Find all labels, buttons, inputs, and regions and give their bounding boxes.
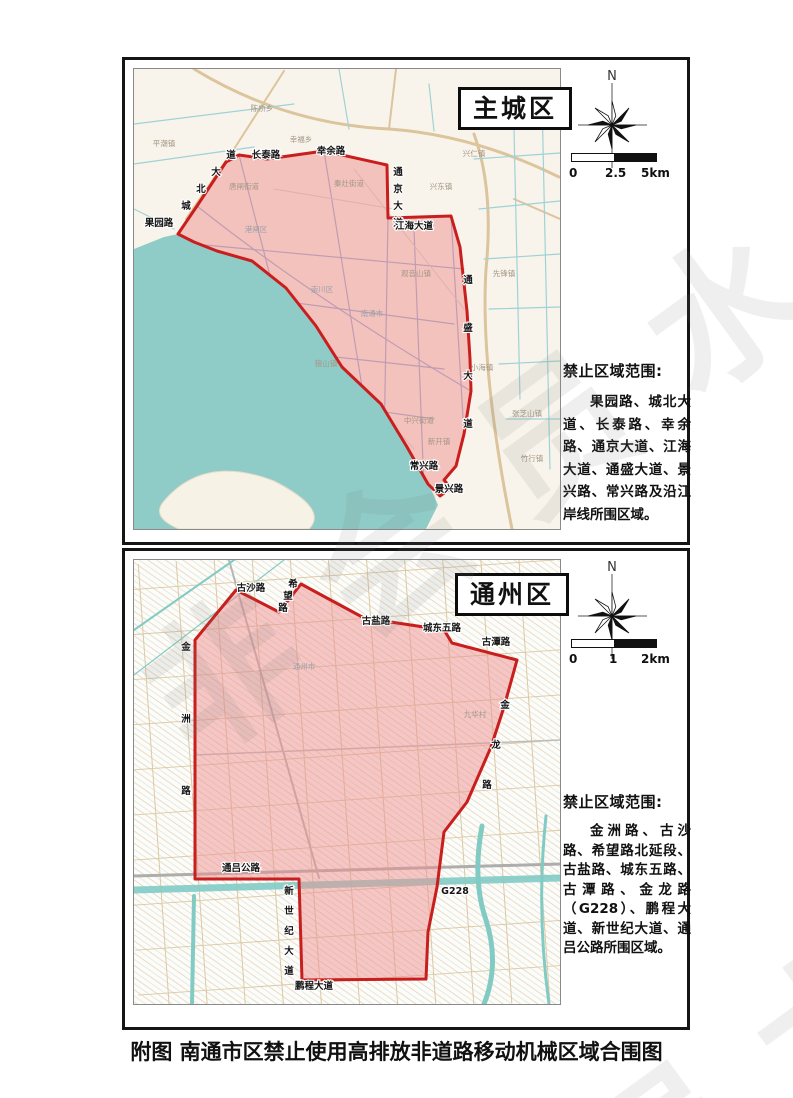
area-label: 幸福乡 xyxy=(290,135,313,144)
road-label: 城东五路 xyxy=(423,622,462,634)
area-label: 狼山镇 xyxy=(315,358,338,368)
area-label: 先锋镇 xyxy=(493,268,516,278)
map-title: 通州区 xyxy=(455,573,569,616)
area-label: 兴东镇 xyxy=(430,181,453,191)
scale-bar-white xyxy=(572,154,614,161)
area-label: 平潮镇 xyxy=(153,138,176,148)
area-label: 中兴街道 xyxy=(404,415,434,425)
area-label: 张芝山镇 xyxy=(512,408,542,418)
north-label: N xyxy=(607,560,617,575)
scale-label-end: 2km xyxy=(641,652,670,666)
scale-labels: 0 1 2km xyxy=(567,652,677,668)
panel-tongzhou: 通州市 九华村 古沙路 希望路 古盐路 城东五路 古潭路 金洲路 金龙路 G22… xyxy=(122,548,690,1030)
area-label: 兴仁镇 xyxy=(463,148,486,158)
road-label: G228 xyxy=(441,886,469,897)
document-page: 非会员水印 非会员水印 xyxy=(0,0,793,1098)
map-tongzhou: 通州市 九华村 古沙路 希望路 古盐路 城东五路 古潭路 金洲路 金龙路 G22… xyxy=(133,559,561,1005)
area-label: 九华村 xyxy=(464,709,487,719)
scale-labels: 0 2.5 5km xyxy=(567,166,677,182)
area-label: 崇川区 xyxy=(311,285,334,294)
road-label: 长泰路 xyxy=(252,149,281,161)
compass-blades xyxy=(588,592,636,640)
compass-rose: N xyxy=(577,559,663,667)
scale-bar-black xyxy=(614,154,656,161)
map-main-urban: 平潮镇 陈桥乡 幸福乡 兴仁镇 兴东镇 先锋镇 小海镇 张芝山镇 竹行镇 港闸区… xyxy=(133,68,561,530)
scale-bar xyxy=(571,153,657,162)
road-label: 常兴路 xyxy=(410,460,439,472)
restricted-area-legend: 禁止区域范围: 果园路、城北大道、长泰路、幸余路、通京大道、江海大道、通盛大道、… xyxy=(563,360,691,526)
road-label: 古盐路 xyxy=(362,615,391,627)
north-label: N xyxy=(607,69,617,84)
area-label: 秦灶街道 xyxy=(334,178,364,188)
scale-bar-white xyxy=(572,640,614,647)
road-label: 古沙路 xyxy=(237,582,266,594)
scale-label-start: 0 xyxy=(569,652,577,666)
scale-bar-black xyxy=(614,640,656,647)
scale-label-end: 5km xyxy=(641,166,670,180)
legend-heading: 禁止区域范围: xyxy=(563,360,691,381)
scale-bar xyxy=(571,639,657,648)
map-title: 主城区 xyxy=(458,87,572,130)
area-label: 小海镇 xyxy=(471,362,494,372)
road-label: 景兴路 xyxy=(434,483,464,495)
area-label: 竹行镇 xyxy=(521,453,544,463)
legend-body: 金洲路、古沙路、希望路北延段、古盐路、城东五路、古潭路、金龙路（G228）、鹏程… xyxy=(563,822,691,959)
road-label: 通吕公路 xyxy=(222,862,261,874)
scale-label-mid: 1 xyxy=(609,652,617,666)
area-label: 港闸区 xyxy=(245,224,268,234)
scale-label-start: 0 xyxy=(569,166,577,180)
road-label: 果园路 xyxy=(144,217,174,229)
scale-label-mid: 2.5 xyxy=(605,166,626,180)
road-label: 江海大道 xyxy=(395,220,434,232)
area-label: 唐闸街道 xyxy=(229,181,259,191)
area-label: 陈桥乡 xyxy=(251,103,274,113)
panel-main-urban: 平潮镇 陈桥乡 幸福乡 兴仁镇 兴东镇 先锋镇 小海镇 张芝山镇 竹行镇 港闸区… xyxy=(122,57,690,545)
page-caption: 附图 南通市区禁止使用高排放非道路移动机械区域合围图 xyxy=(0,1036,793,1066)
road-label: 古潭路 xyxy=(482,636,511,648)
road-label: 幸余路 xyxy=(317,145,346,157)
area-label: 南通市 xyxy=(361,308,384,318)
compass-blades xyxy=(588,101,636,149)
area-label: 通州市 xyxy=(293,661,316,671)
area-label: 观音山镇 xyxy=(401,268,431,278)
legend-body: 果园路、城北大道、长泰路、幸余路、通京大道、江海大道、通盛大道、景兴路、常兴路及… xyxy=(563,391,691,526)
road-label: 鹏程大道 xyxy=(295,980,334,992)
restricted-area-legend: 禁止区域范围: 金洲路、古沙路、希望路北延段、古盐路、城东五路、古潭路、金龙路（… xyxy=(563,791,691,959)
area-label: 新开镇 xyxy=(428,436,451,446)
legend-heading: 禁止区域范围: xyxy=(563,791,691,812)
